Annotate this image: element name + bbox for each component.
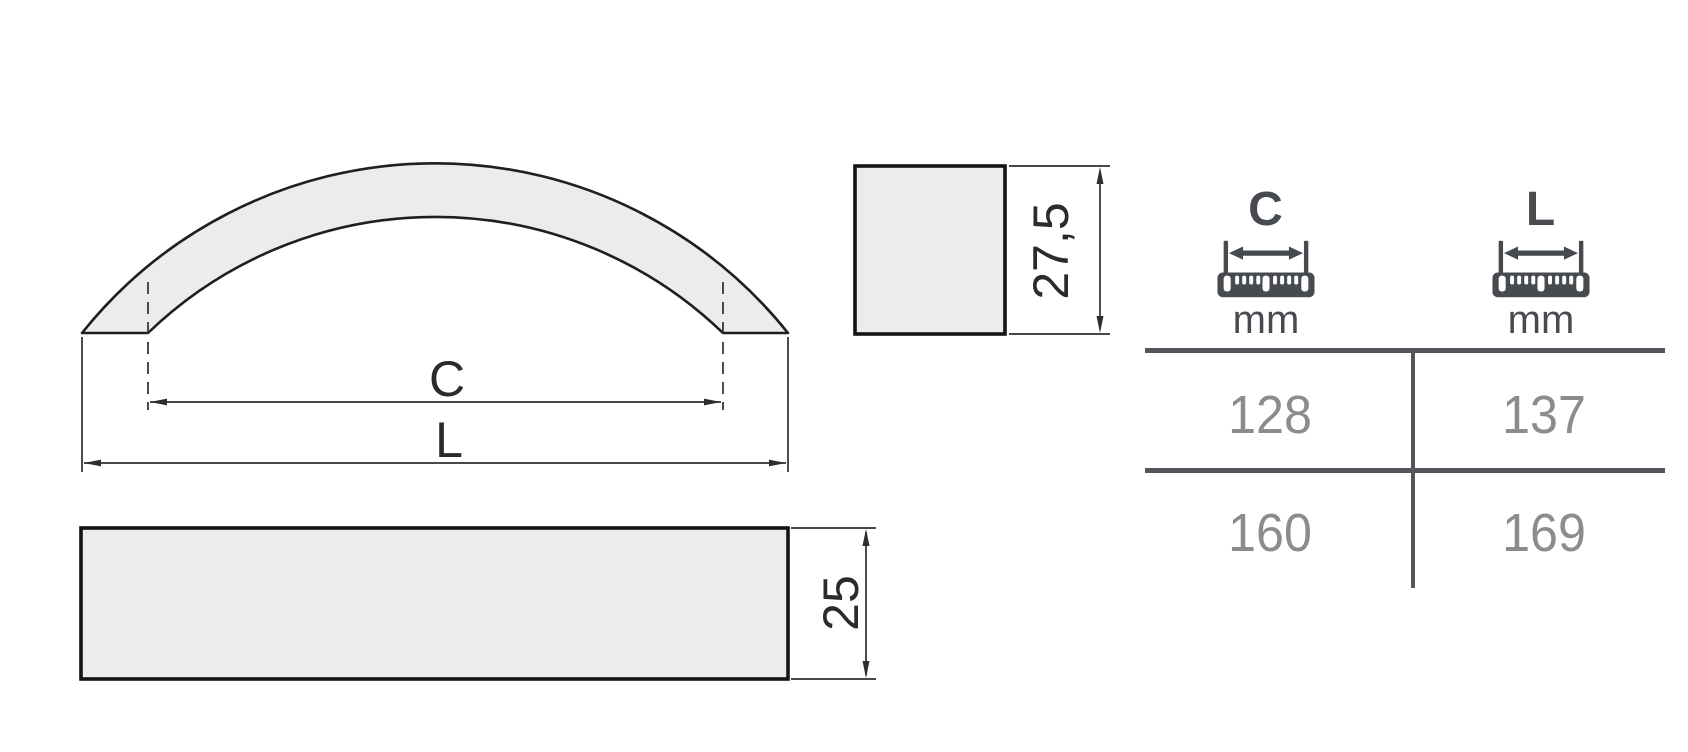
handle-side-view [855,166,1005,334]
column-c-unit: mm [1233,300,1300,340]
c-dimension-label: C [429,351,465,407]
ruler-mm-icon [1491,239,1591,299]
ruler-mm-icon [1216,239,1316,299]
bottom-height-label: 25 [813,575,869,631]
table-cell-c-128: 128 [1177,384,1363,446]
table-middle-rule [1145,468,1665,473]
side-height-label: 27,5 [1023,202,1079,299]
table-top-rule [1145,348,1665,353]
handle-front-view [82,163,788,333]
column-l-unit: mm [1508,300,1575,340]
column-c-label: C [1248,186,1284,234]
handle-technical-drawing: C L 27,5 25 [0,0,1688,752]
handle-spec-sheet: C L 27,5 25 C mm L [0,0,1688,752]
table-header-c: C mm [1166,186,1366,340]
l-dimension-label: L [435,412,463,468]
table-column-divider [1411,348,1415,588]
table-cell-l-137: 137 [1451,384,1637,446]
handle-bottom-view [81,528,788,679]
table-cell-l-169: 169 [1451,502,1637,564]
column-l-label: L [1526,186,1556,234]
table-cell-c-160: 160 [1177,502,1363,564]
table-header-l: L mm [1441,186,1641,340]
